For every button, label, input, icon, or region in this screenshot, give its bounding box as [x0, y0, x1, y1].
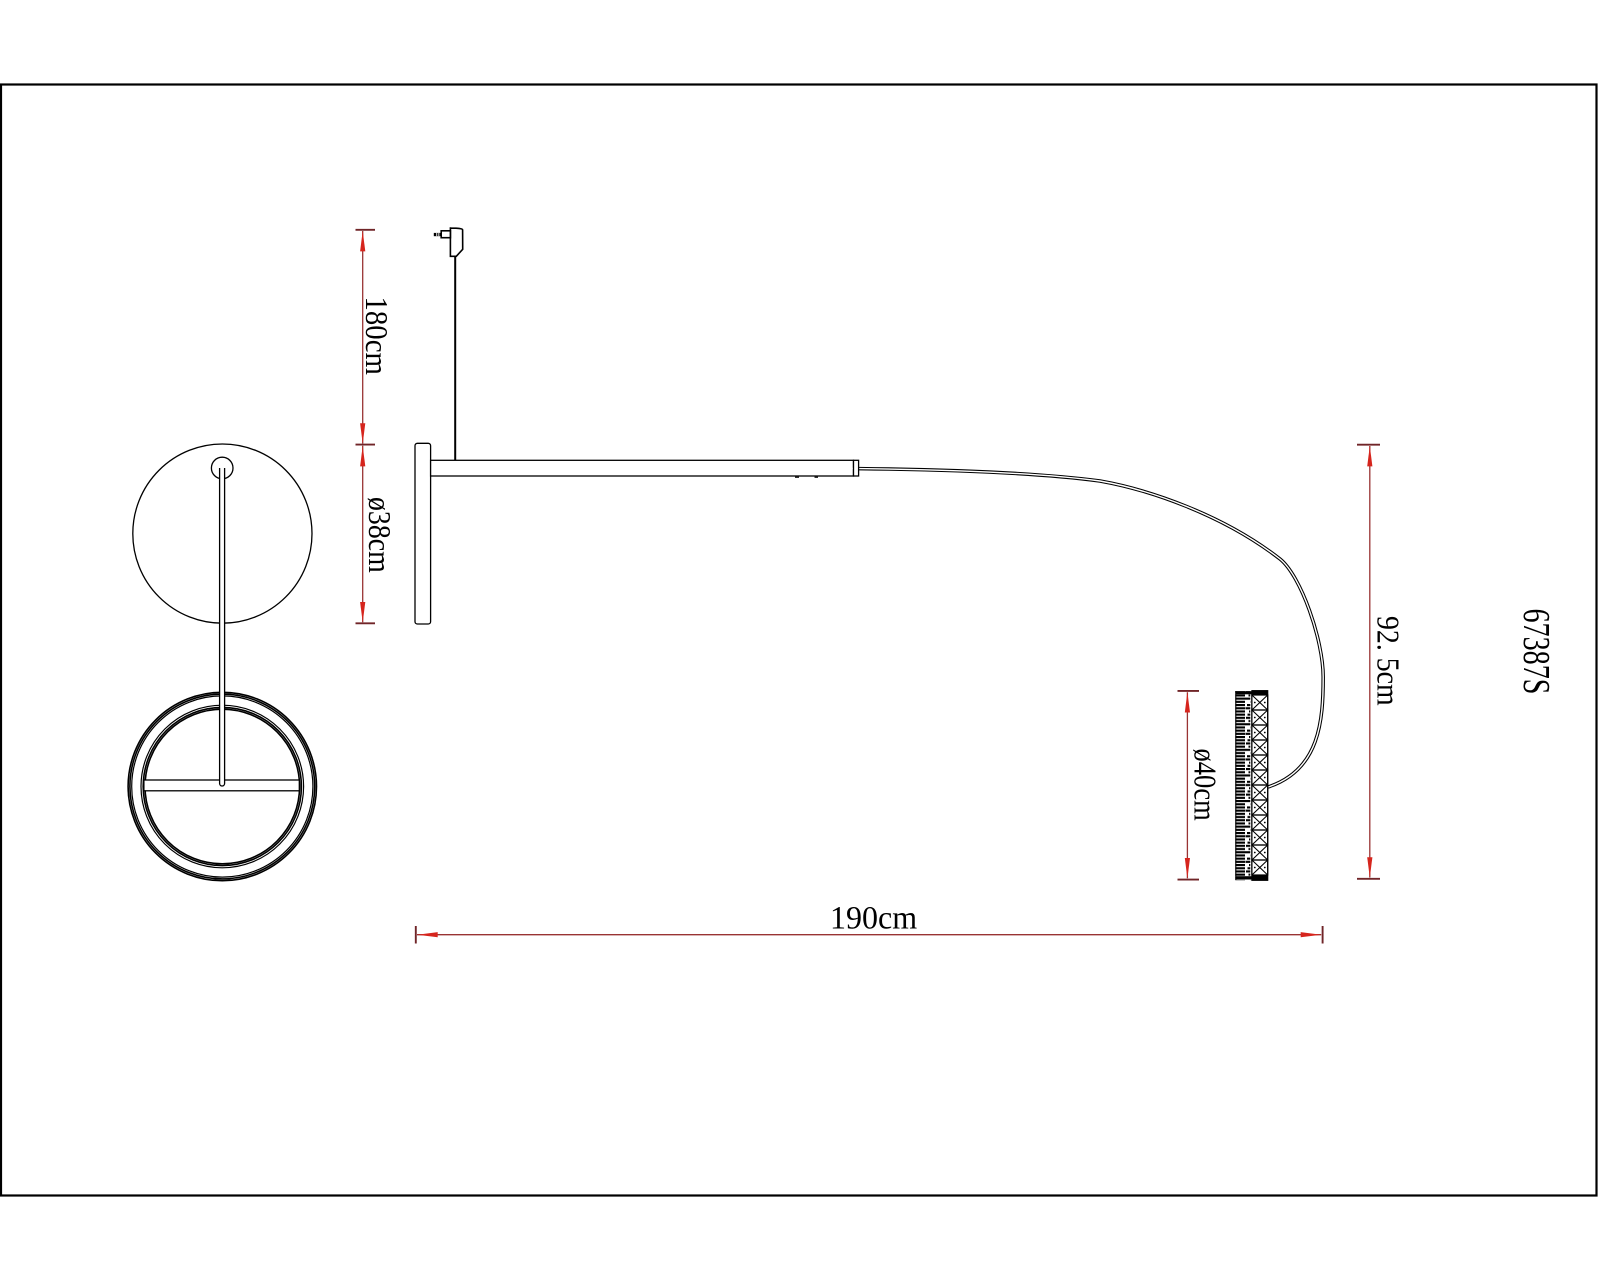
svg-text:ø40cm: ø40cm — [1187, 749, 1222, 821]
svg-text:ø38cm: ø38cm — [362, 497, 397, 573]
svg-text:190cm: 190cm — [830, 900, 917, 937]
svg-text:92. 5cm: 92. 5cm — [1370, 616, 1405, 706]
svg-text:180cm: 180cm — [359, 297, 395, 376]
svg-text:67387S: 67387S — [1515, 609, 1557, 695]
